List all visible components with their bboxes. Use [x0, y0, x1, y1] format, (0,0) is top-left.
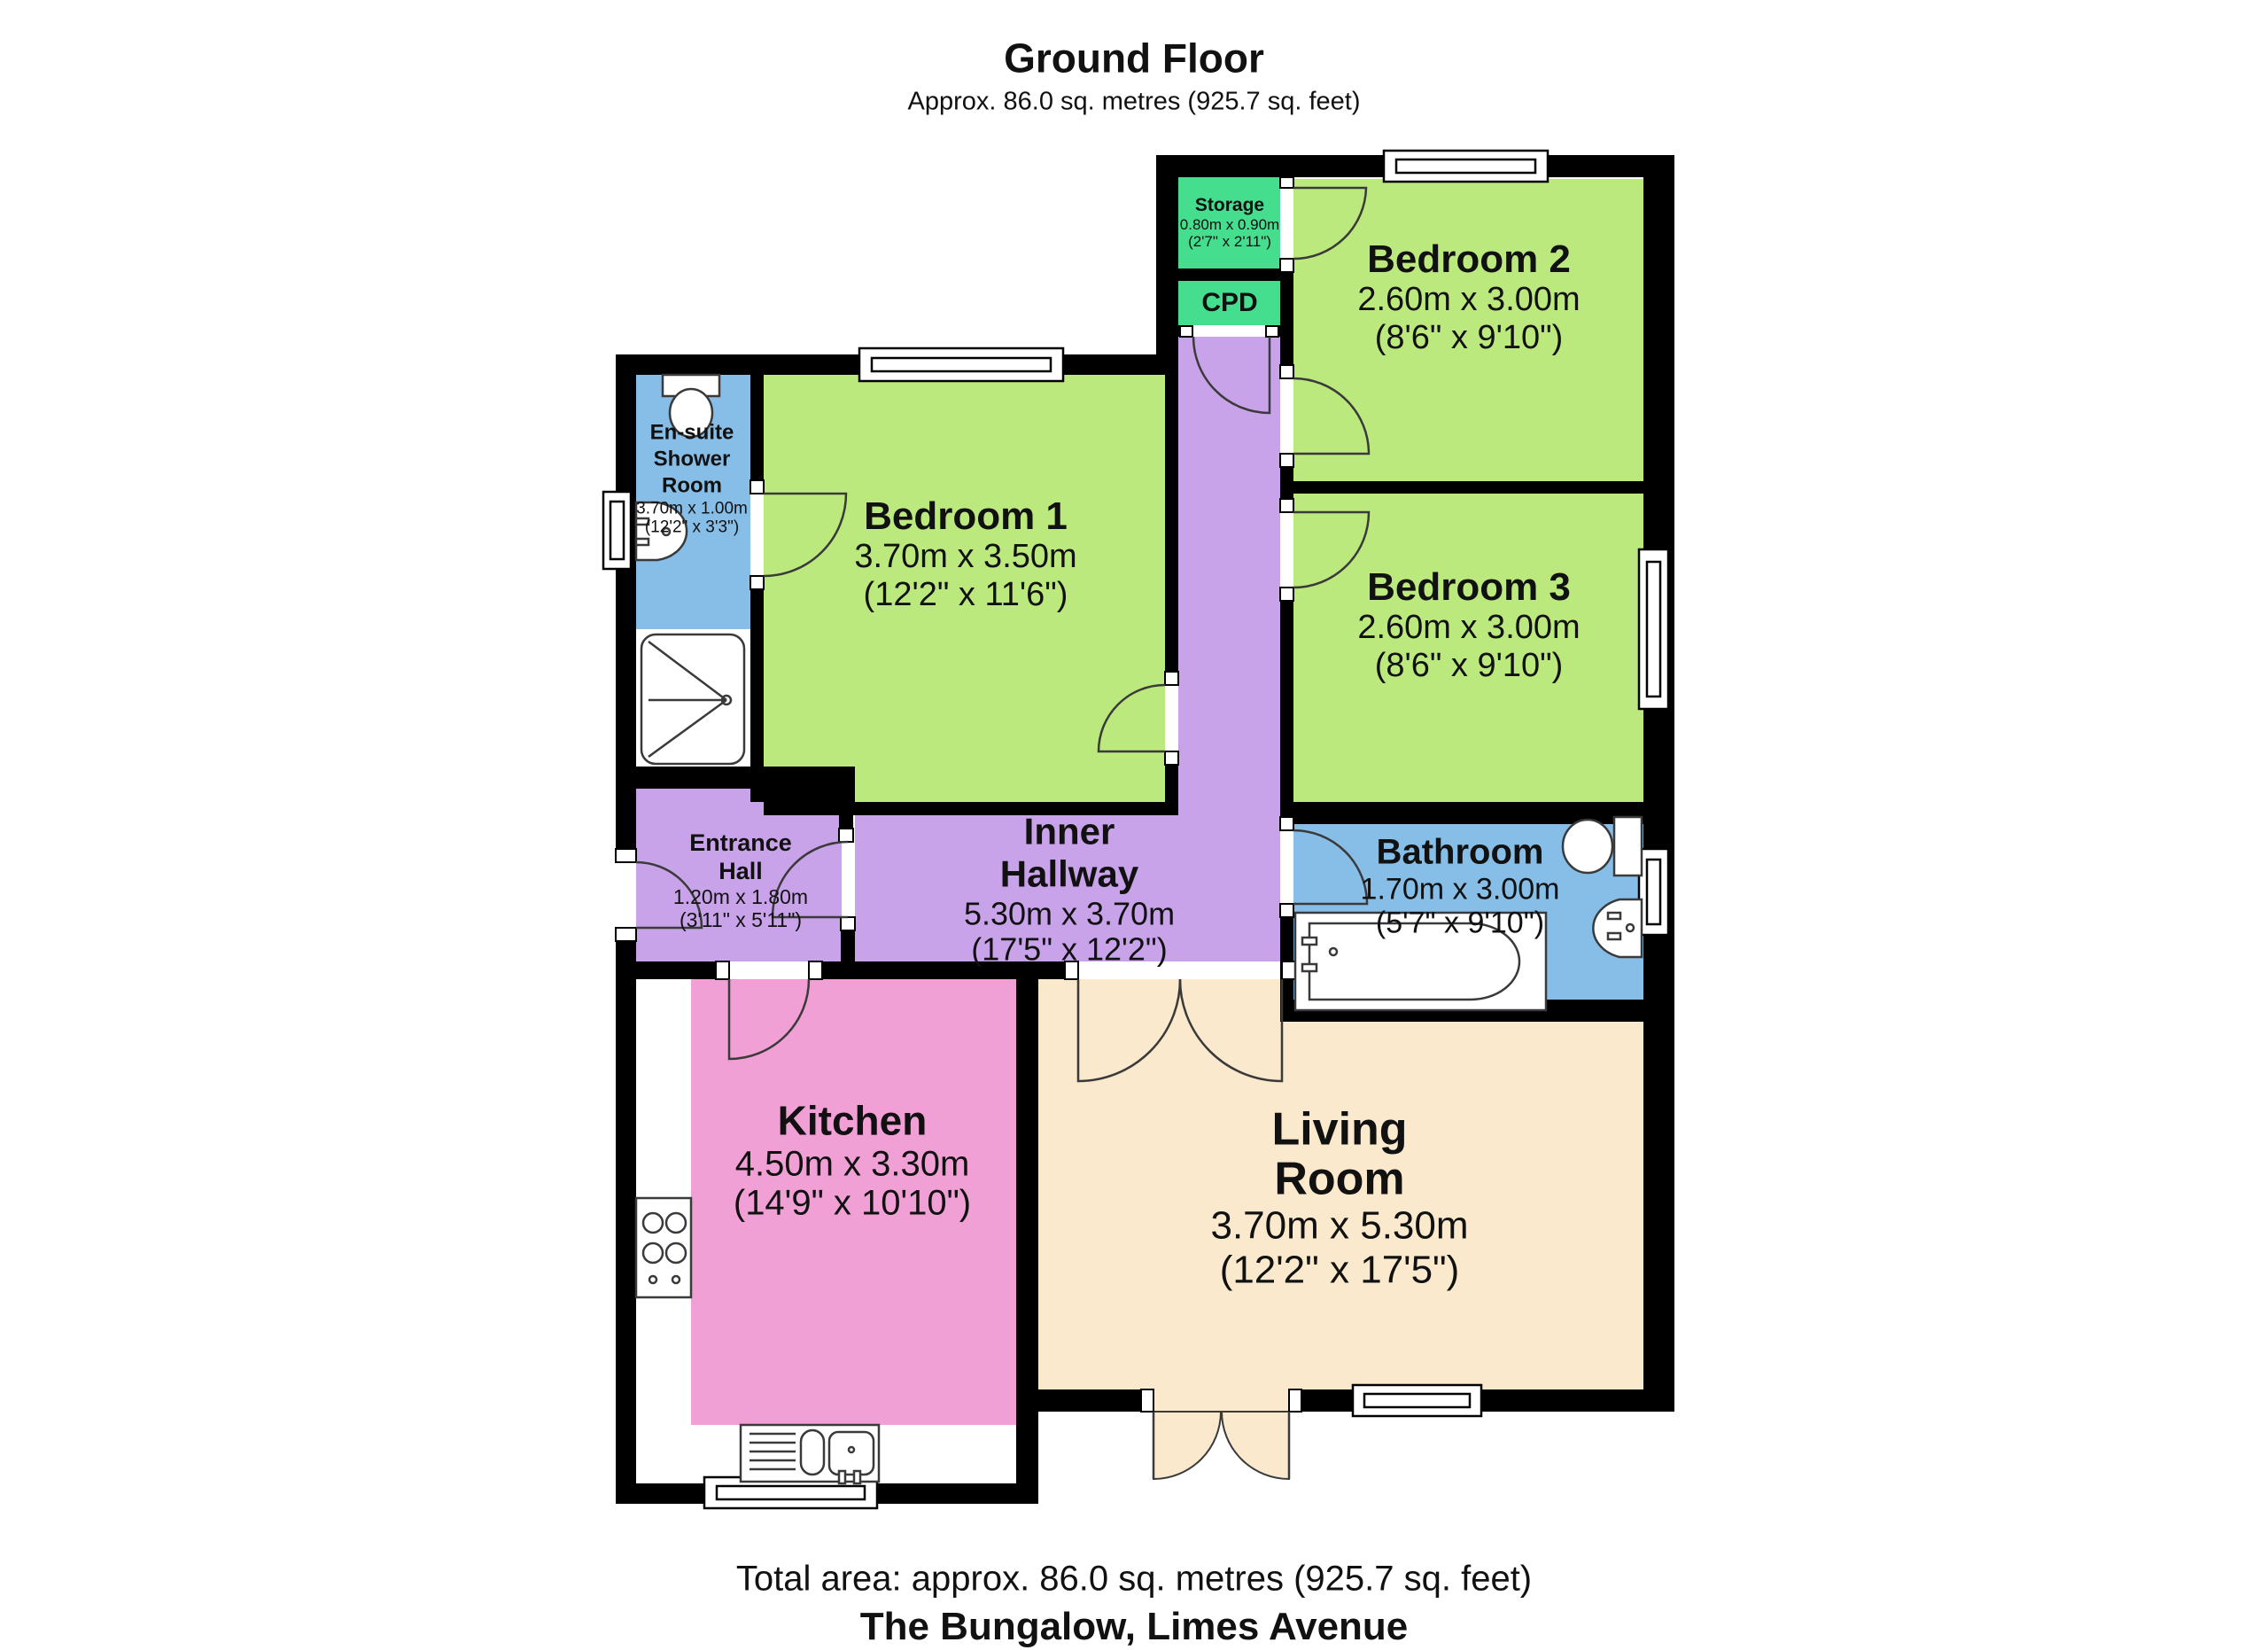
- room-dims-ft: (5'7" x 9'10"): [1361, 906, 1560, 939]
- room-dims-ft: (12'2" x 17'5"): [1210, 1248, 1468, 1291]
- room-dims-m: 1.70m x 3.00m: [1361, 872, 1560, 906]
- room-dims-m: 3.70m x 3.50m: [854, 538, 1076, 576]
- address-text: The Bungalow, Limes Avenue: [860, 1605, 1409, 1649]
- room-name-line: Living: [1210, 1105, 1468, 1155]
- room-label-bedroom3: Bedroom 3 2.60m x 3.00m (8'6" x 9'10"): [1357, 565, 1580, 684]
- room-label-cpd: CPD: [1201, 288, 1257, 318]
- room-label-inner-hallway: Inner Hallway 5.30m x 3.70m (17'5" x 12'…: [964, 810, 1175, 967]
- room-name-line: Inner: [964, 810, 1175, 852]
- room-name: Bedroom 3: [1357, 565, 1580, 609]
- room-name-line: Room: [636, 473, 748, 500]
- french-door-threshold: [1153, 1389, 1289, 1412]
- room-dims-m: 3.70m x 5.30m: [1210, 1204, 1468, 1248]
- room-name-line: Room: [1210, 1155, 1468, 1204]
- room-label-kitchen: Kitchen 4.50m x 3.30m (14'9" x 10'10"): [734, 1098, 971, 1223]
- room-name: Kitchen: [734, 1098, 971, 1144]
- page-title: Ground Floor: [908, 35, 1361, 82]
- room-dims-ft: (17'5" x 12'2"): [964, 931, 1175, 967]
- corridor-floor: [1178, 337, 1280, 815]
- page-subtitle: Approx. 86.0 sq. metres (925.7 sq. feet): [908, 88, 1361, 117]
- room-dims-m: 3.70m x 1.00m: [636, 500, 748, 518]
- window-living-bottom: [1353, 1385, 1481, 1416]
- room-dims-m: 4.50m x 3.30m: [734, 1144, 971, 1184]
- plan-title: Ground Floor Approx. 86.0 sq. metres (92…: [908, 35, 1361, 117]
- room-label-bedroom1: Bedroom 1 3.70m x 3.50m (12'2" x 11'6"): [854, 494, 1076, 613]
- hob-icon: [636, 1198, 691, 1297]
- total-area-text: Total area: approx. 86.0 sq. metres (925…: [736, 1560, 1532, 1599]
- room-dims-m: 0.80m x 0.90m: [1180, 216, 1279, 233]
- room-name-line: Entrance: [673, 829, 808, 857]
- window-bedroom3-right: [1639, 549, 1668, 709]
- window-ensuite-left: [603, 492, 631, 569]
- kitchen-sink-icon: [741, 1425, 879, 1483]
- room-name: CPD: [1201, 288, 1257, 318]
- room-dims-ft: (8'6" x 9'10"): [1357, 647, 1580, 685]
- room-name: Storage: [1180, 195, 1279, 216]
- room-dims-m: 1.20m x 1.80m: [673, 886, 808, 909]
- shower-tray-icon: [641, 634, 744, 764]
- room-label-ensuite: En-suite Shower Room 3.70m x 1.00m (12'2…: [636, 420, 748, 538]
- room-name-line: Hallway: [964, 853, 1175, 896]
- room-label-entrance-hall: Entrance Hall 1.20m x 1.80m (3'11" x 5'1…: [673, 829, 808, 931]
- room-name-line: En-suite: [636, 420, 748, 447]
- window-bathroom-right: [1639, 849, 1668, 935]
- room-name-line: Shower: [636, 447, 748, 473]
- room-dims-m: 5.30m x 3.70m: [964, 896, 1175, 931]
- room-name: Bedroom 1: [854, 494, 1076, 538]
- room-dims-m: 2.60m x 3.00m: [1357, 609, 1580, 647]
- room-dims-ft: (12'2" x 3'3"): [636, 518, 748, 537]
- room-name-line: Hall: [673, 857, 808, 885]
- room-dims-ft: (3'11" x 5'11"): [673, 908, 808, 931]
- floorplan-page: Ground Floor Approx. 86.0 sq. metres (92…: [0, 0, 2268, 1650]
- room-dims-ft: (12'2" x 11'6"): [854, 576, 1076, 614]
- room-name: Bathroom: [1361, 833, 1560, 873]
- french-doors-exterior: [1153, 1412, 1289, 1479]
- room-name: Bedroom 2: [1357, 237, 1580, 281]
- room-dims-m: 2.60m x 3.00m: [1357, 281, 1580, 319]
- room-dims-ft: (14'9" x 10'10"): [734, 1184, 971, 1224]
- room-label-living-room: Living Room 3.70m x 5.30m (12'2" x 17'5"…: [1210, 1105, 1468, 1292]
- window-bedroom1-top: [859, 348, 1063, 381]
- room-label-bathroom: Bathroom 1.70m x 3.00m (5'7" x 9'10"): [1361, 833, 1560, 940]
- room-dims-ft: (2'7" x 2'11"): [1180, 233, 1279, 250]
- room-label-storage: Storage 0.80m x 0.90m (2'7" x 2'11"): [1180, 195, 1279, 250]
- window-bedroom2-top: [1384, 151, 1548, 182]
- bathroom-toilet-icon: [1563, 817, 1642, 876]
- room-label-bedroom2: Bedroom 2 2.60m x 3.00m (8'6" x 9'10"): [1357, 237, 1580, 356]
- room-dims-ft: (8'6" x 9'10"): [1357, 319, 1580, 357]
